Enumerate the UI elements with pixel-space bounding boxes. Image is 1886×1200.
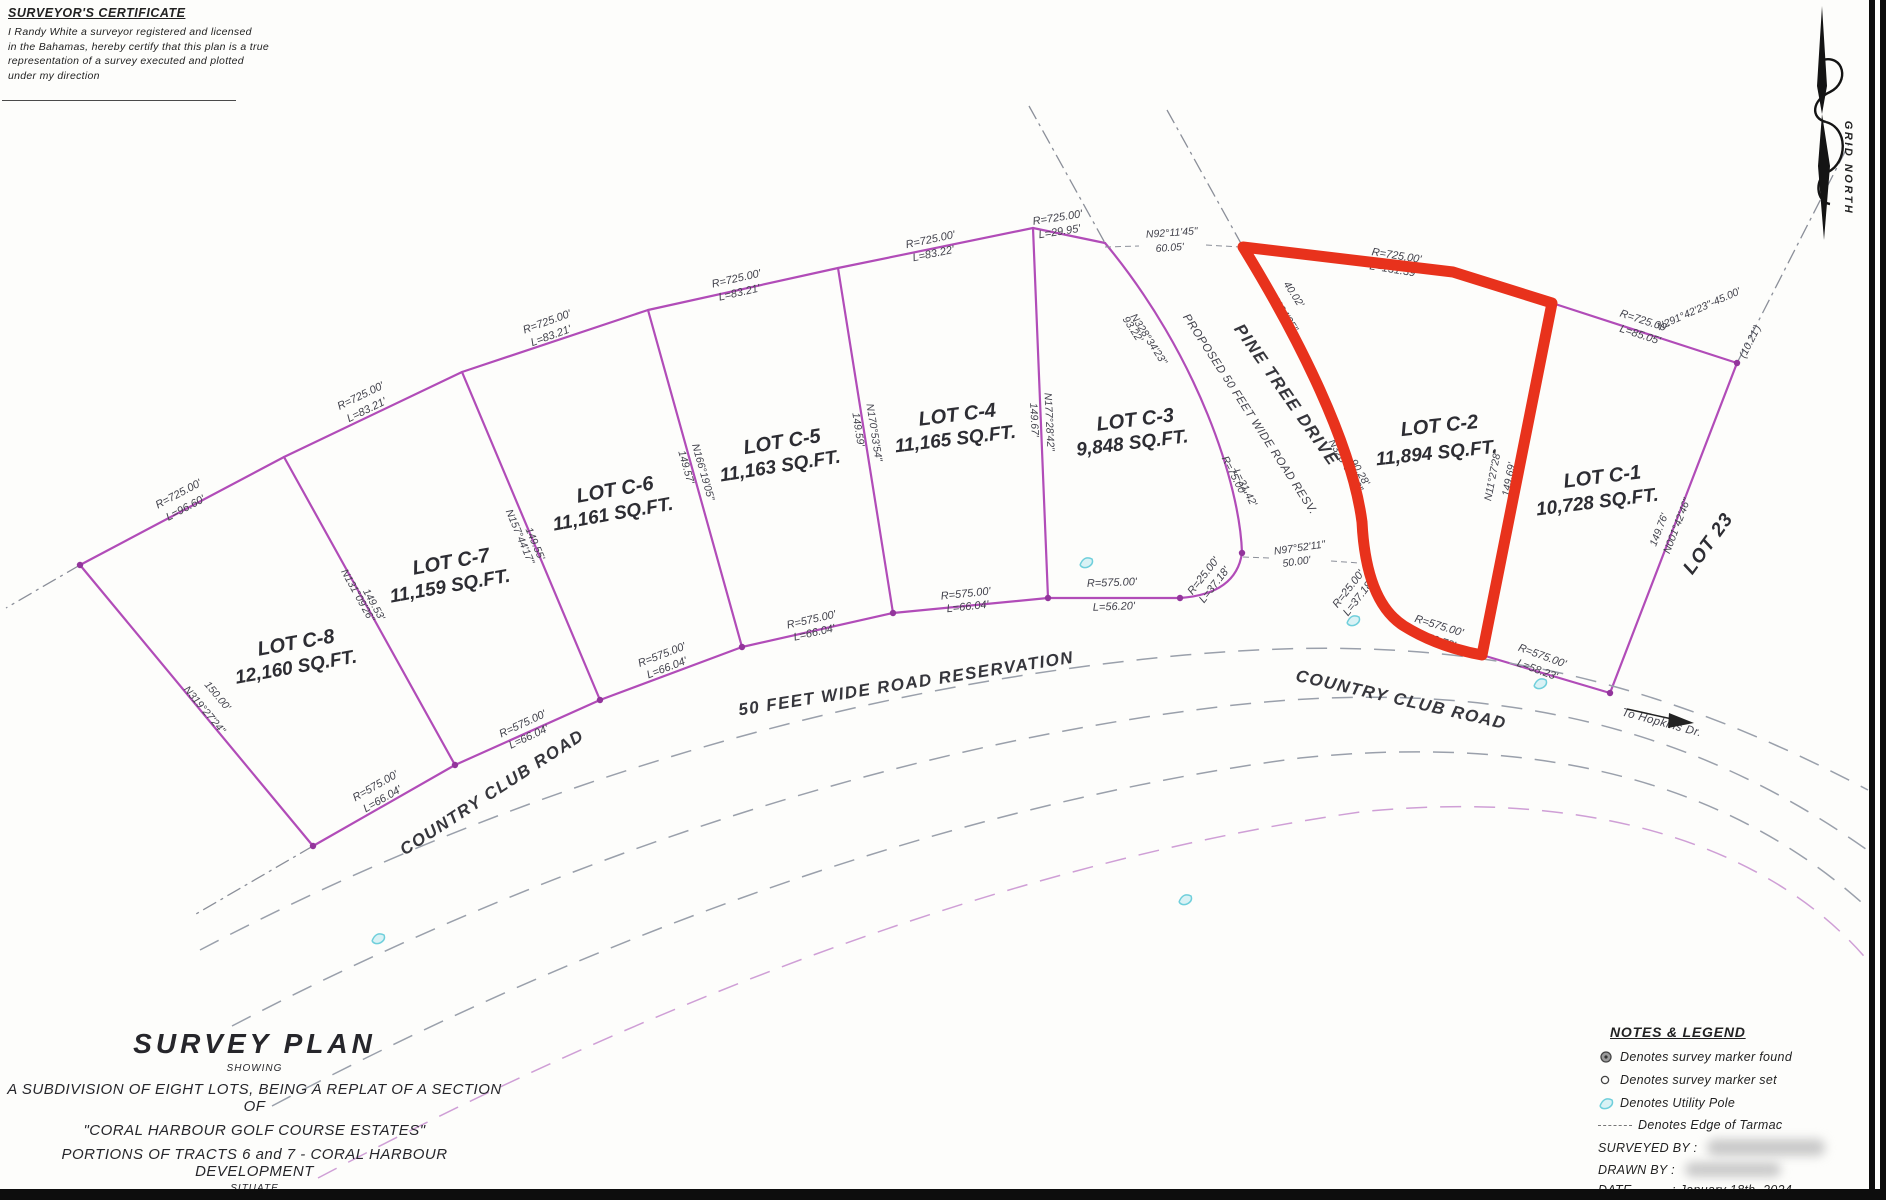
- certificate-line: under my direction: [8, 69, 338, 84]
- plan-subtitle-line: "CORAL HARBOUR GOLF COURSE ESTATES": [2, 1122, 507, 1139]
- redacted-surveyor-name: [1707, 1139, 1825, 1156]
- plan-title: SURVEY PLAN: [2, 1028, 507, 1060]
- legend-item-marker-found: Denotes survey marker found: [1598, 1049, 1870, 1065]
- top-arc-dimensions: R=725.00' L=96.60' R=725.00' L=83.21' R=…: [154, 208, 1671, 523]
- lot-c1-area: 10,728 SQ.FT.: [1535, 485, 1660, 521]
- country-club-road-right-label: COUNTRY CLUB ROAD: [1294, 666, 1508, 733]
- edge-of-tarmac-icon: [1598, 1125, 1632, 1126]
- legend-item-edge-of-tarmac: Denotes Edge of Tarmac: [1598, 1118, 1870, 1132]
- legend-item-utility-pole: Denotes Utility Pole: [1598, 1095, 1870, 1111]
- leader-road-top-left: [1105, 246, 1139, 247]
- north-needle-bottom: [1818, 114, 1830, 240]
- survey-marker-found-icon: [1598, 1049, 1620, 1065]
- certificate-line: I Randy White a surveyor registered and …: [8, 25, 338, 40]
- lot-c2-area: 11,894 SQ.FT.: [1375, 437, 1498, 471]
- leader-road-bottom-left: [1243, 557, 1270, 558]
- redacted-drafter-name: [1685, 1162, 1781, 1177]
- survey-marker: [597, 697, 603, 703]
- utility-pole-icon: [1534, 679, 1547, 689]
- survey-marker: [1239, 550, 1245, 556]
- brg-road-top: N92°11'45": [1146, 225, 1200, 241]
- brg-road-top-len: 60.05': [1155, 241, 1185, 255]
- lot-c4-area: 11,165 SQ.FT.: [894, 422, 1017, 458]
- notes-legend: NOTES & LEGEND Denotes survey marker fou…: [1598, 1024, 1870, 1197]
- legend-item-text: Denotes Edge of Tarmac: [1638, 1118, 1782, 1132]
- brg-northeast-tick: (10.21'): [1737, 323, 1764, 360]
- legend-item-text: Denotes survey marker set: [1620, 1073, 1777, 1087]
- pine-tree-drive-west-edge: [1105, 243, 1242, 553]
- grid-north-label: GRID NORTH: [1842, 121, 1854, 215]
- legend-item-marker-set: Denotes survey marker set: [1598, 1072, 1870, 1088]
- survey-marker: [1045, 595, 1051, 601]
- survey-marker: [1734, 360, 1740, 366]
- page-edge-right-inner: [1880, 0, 1886, 1200]
- certificate-line: representation of a survey executed and …: [8, 54, 338, 69]
- tarmac-dash-2: [232, 697, 1870, 1026]
- survey-marker: [1177, 595, 1183, 601]
- country-club-road-left-label: COUNTRY CLUB ROAD: [396, 726, 587, 859]
- utility-pole-icon: [1179, 895, 1192, 905]
- survey-marker: [1607, 690, 1613, 696]
- certificate-line: in the Bahamas, hereby certify that this…: [8, 40, 338, 55]
- brg-d54-len: 149.59': [849, 412, 866, 449]
- survey-plan-sheet: R=725.00' L=96.60' R=725.00' L=83.21' R=…: [0, 0, 1886, 1200]
- survey-marker: [739, 644, 745, 650]
- brg-road-bottom-len: 50.00': [1282, 554, 1313, 570]
- dim-c3-bot-l: L=56.20': [1093, 600, 1136, 613]
- dim-c3-bot-r: R=575.00': [1087, 576, 1138, 590]
- drawn-by-label: DRAWN BY :: [1598, 1163, 1675, 1177]
- drawn-by-row: DRAWN BY :: [1598, 1162, 1870, 1177]
- page-edge-bottom: [0, 1189, 1886, 1200]
- projection-southwest: [196, 846, 313, 914]
- plan-subtitle-line: A SUBDIVISION OF EIGHT LOTS, BEING A REP…: [2, 1081, 507, 1115]
- plan-subtitle-line: PORTIONS OF TRACTS 6 and 7 - CORAL HARBO…: [2, 1146, 507, 1180]
- utility-pole-icon: [372, 934, 385, 944]
- surveyed-by-label: SURVEYED BY :: [1598, 1141, 1697, 1155]
- brg-northeast: N291°42'23"-45.00': [1655, 285, 1743, 333]
- survey-marker-set-icon: [1598, 1072, 1620, 1088]
- survey-marker: [890, 610, 896, 616]
- survey-marker: [77, 562, 83, 568]
- title-block: SURVEY PLAN SHOWING A SUBDIVISION OF EIG…: [2, 1028, 507, 1200]
- legend-item-text: Denotes Utility Pole: [1620, 1096, 1735, 1110]
- plan-showing: SHOWING: [2, 1063, 507, 1074]
- leader-road-bottom-right: [1331, 561, 1359, 563]
- lot-23-label: LOT 23: [1679, 509, 1737, 578]
- grid-north-arrow: [1815, 6, 1843, 240]
- surveyor-certificate: SURVEYOR'S CERTIFICATE I Randy White a s…: [8, 6, 338, 83]
- utility-pole-icon: [1080, 558, 1093, 568]
- survey-marker: [310, 843, 316, 849]
- legend-item-text: Denotes survey marker found: [1620, 1050, 1792, 1064]
- page-edge-right-outer: [1869, 0, 1875, 1200]
- brg-d43: N177°28'42": [1041, 392, 1056, 452]
- lot-c2-label: LOT C-2: [1400, 411, 1480, 441]
- survey-marker: [452, 762, 458, 768]
- plan-drawing: R=725.00' L=96.60' R=725.00' L=83.21' R=…: [0, 0, 1886, 1200]
- road-reservation-label: 50 FEET WIDE ROAD RESERVATION: [737, 648, 1075, 720]
- tarmac-dash-1: [200, 648, 1868, 950]
- certificate-title: SURVEYOR'S CERTIFICATE: [8, 6, 338, 20]
- utility-pole-icon: [1598, 1095, 1620, 1111]
- projection-west: [6, 565, 80, 608]
- brg-d43-len: 149.67': [1027, 402, 1041, 438]
- lot-boundaries: [80, 228, 1737, 846]
- legend-title: NOTES & LEGEND: [1610, 1024, 1870, 1040]
- surveyed-by-row: SURVEYED BY :: [1598, 1139, 1870, 1156]
- leader-road-top-right: [1206, 245, 1240, 247]
- signature-line: [2, 100, 236, 101]
